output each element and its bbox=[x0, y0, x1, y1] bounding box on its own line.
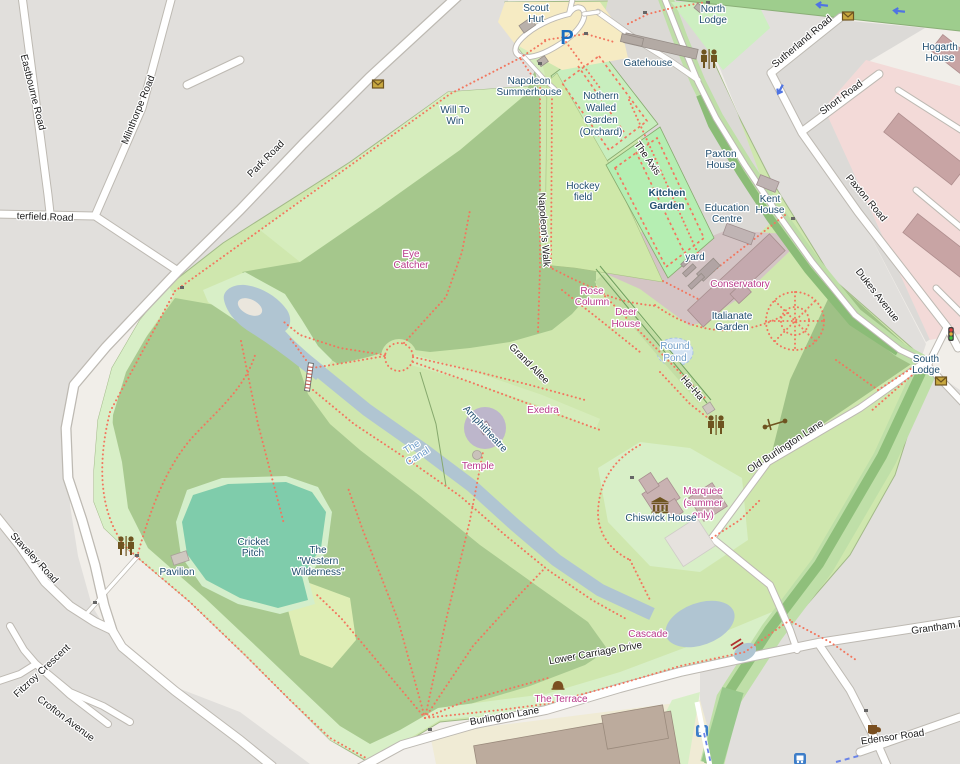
svg-text:Garden: Garden bbox=[584, 115, 617, 126]
svg-text:Deer: Deer bbox=[615, 307, 637, 318]
svg-text:Centre: Centre bbox=[712, 214, 742, 225]
svg-text:Scout: Scout bbox=[523, 3, 549, 14]
svg-text:The Terrace: The Terrace bbox=[534, 694, 588, 705]
svg-text:Hut: Hut bbox=[528, 14, 544, 25]
svg-text:Gatehouse: Gatehouse bbox=[624, 58, 673, 69]
svg-text:Wilderness": Wilderness" bbox=[291, 567, 344, 578]
svg-text:Marquee: Marquee bbox=[683, 486, 723, 497]
svg-text:Nothern: Nothern bbox=[583, 91, 619, 102]
svg-text:Garden: Garden bbox=[649, 201, 684, 212]
svg-text:Round: Round bbox=[660, 341, 689, 352]
svg-text:Kitchen: Kitchen bbox=[649, 188, 686, 199]
svg-text:Hogarth: Hogarth bbox=[922, 42, 958, 53]
svg-text:Garden: Garden bbox=[715, 322, 748, 333]
svg-text:Italianate: Italianate bbox=[712, 311, 753, 322]
svg-text:The: The bbox=[309, 545, 327, 556]
svg-text:Cricket: Cricket bbox=[237, 537, 268, 548]
svg-text:Summerhouse: Summerhouse bbox=[496, 87, 561, 98]
svg-text:yard: yard bbox=[685, 252, 704, 263]
svg-text:House: House bbox=[756, 205, 785, 216]
svg-text:House: House bbox=[612, 319, 641, 330]
svg-text:Lodge: Lodge bbox=[699, 15, 727, 26]
svg-text:(Orchard): (Orchard) bbox=[580, 127, 623, 138]
svg-text:Catcher: Catcher bbox=[393, 260, 429, 271]
svg-text:Pond: Pond bbox=[663, 353, 686, 364]
svg-text:Exedra: Exedra bbox=[527, 405, 559, 416]
svg-text:Chiswick House: Chiswick House bbox=[625, 513, 697, 524]
svg-text:Win: Win bbox=[446, 116, 463, 127]
svg-text:"Western: "Western bbox=[298, 556, 339, 567]
svg-text:Column: Column bbox=[575, 297, 609, 308]
svg-text:Conservatory: Conservatory bbox=[710, 279, 769, 290]
svg-text:(summer: (summer bbox=[683, 498, 723, 509]
svg-text:Pitch: Pitch bbox=[242, 548, 264, 559]
svg-text:Kent: Kent bbox=[760, 194, 781, 205]
svg-text:House: House bbox=[926, 53, 955, 64]
svg-text:P: P bbox=[560, 27, 573, 49]
svg-text:Will To: Will To bbox=[440, 105, 470, 116]
svg-text:Cascade: Cascade bbox=[628, 629, 668, 640]
svg-text:Pavilion: Pavilion bbox=[159, 567, 194, 578]
svg-text:terfield Road: terfield Road bbox=[17, 211, 74, 224]
svg-text:Walled: Walled bbox=[586, 103, 616, 114]
svg-text:Eye: Eye bbox=[402, 249, 420, 260]
svg-text:South: South bbox=[913, 354, 939, 365]
svg-text:Temple: Temple bbox=[462, 461, 495, 472]
svg-text:Napoleon: Napoleon bbox=[508, 76, 551, 87]
svg-text:House: House bbox=[707, 160, 736, 171]
svg-text:Education: Education bbox=[705, 203, 749, 214]
svg-text:Paxton: Paxton bbox=[705, 149, 736, 160]
svg-text:Rose: Rose bbox=[580, 286, 604, 297]
svg-text:Hockey: Hockey bbox=[566, 181, 599, 192]
svg-text:field: field bbox=[574, 192, 592, 203]
svg-text:North: North bbox=[701, 4, 725, 15]
svg-text:Lodge: Lodge bbox=[912, 365, 940, 376]
